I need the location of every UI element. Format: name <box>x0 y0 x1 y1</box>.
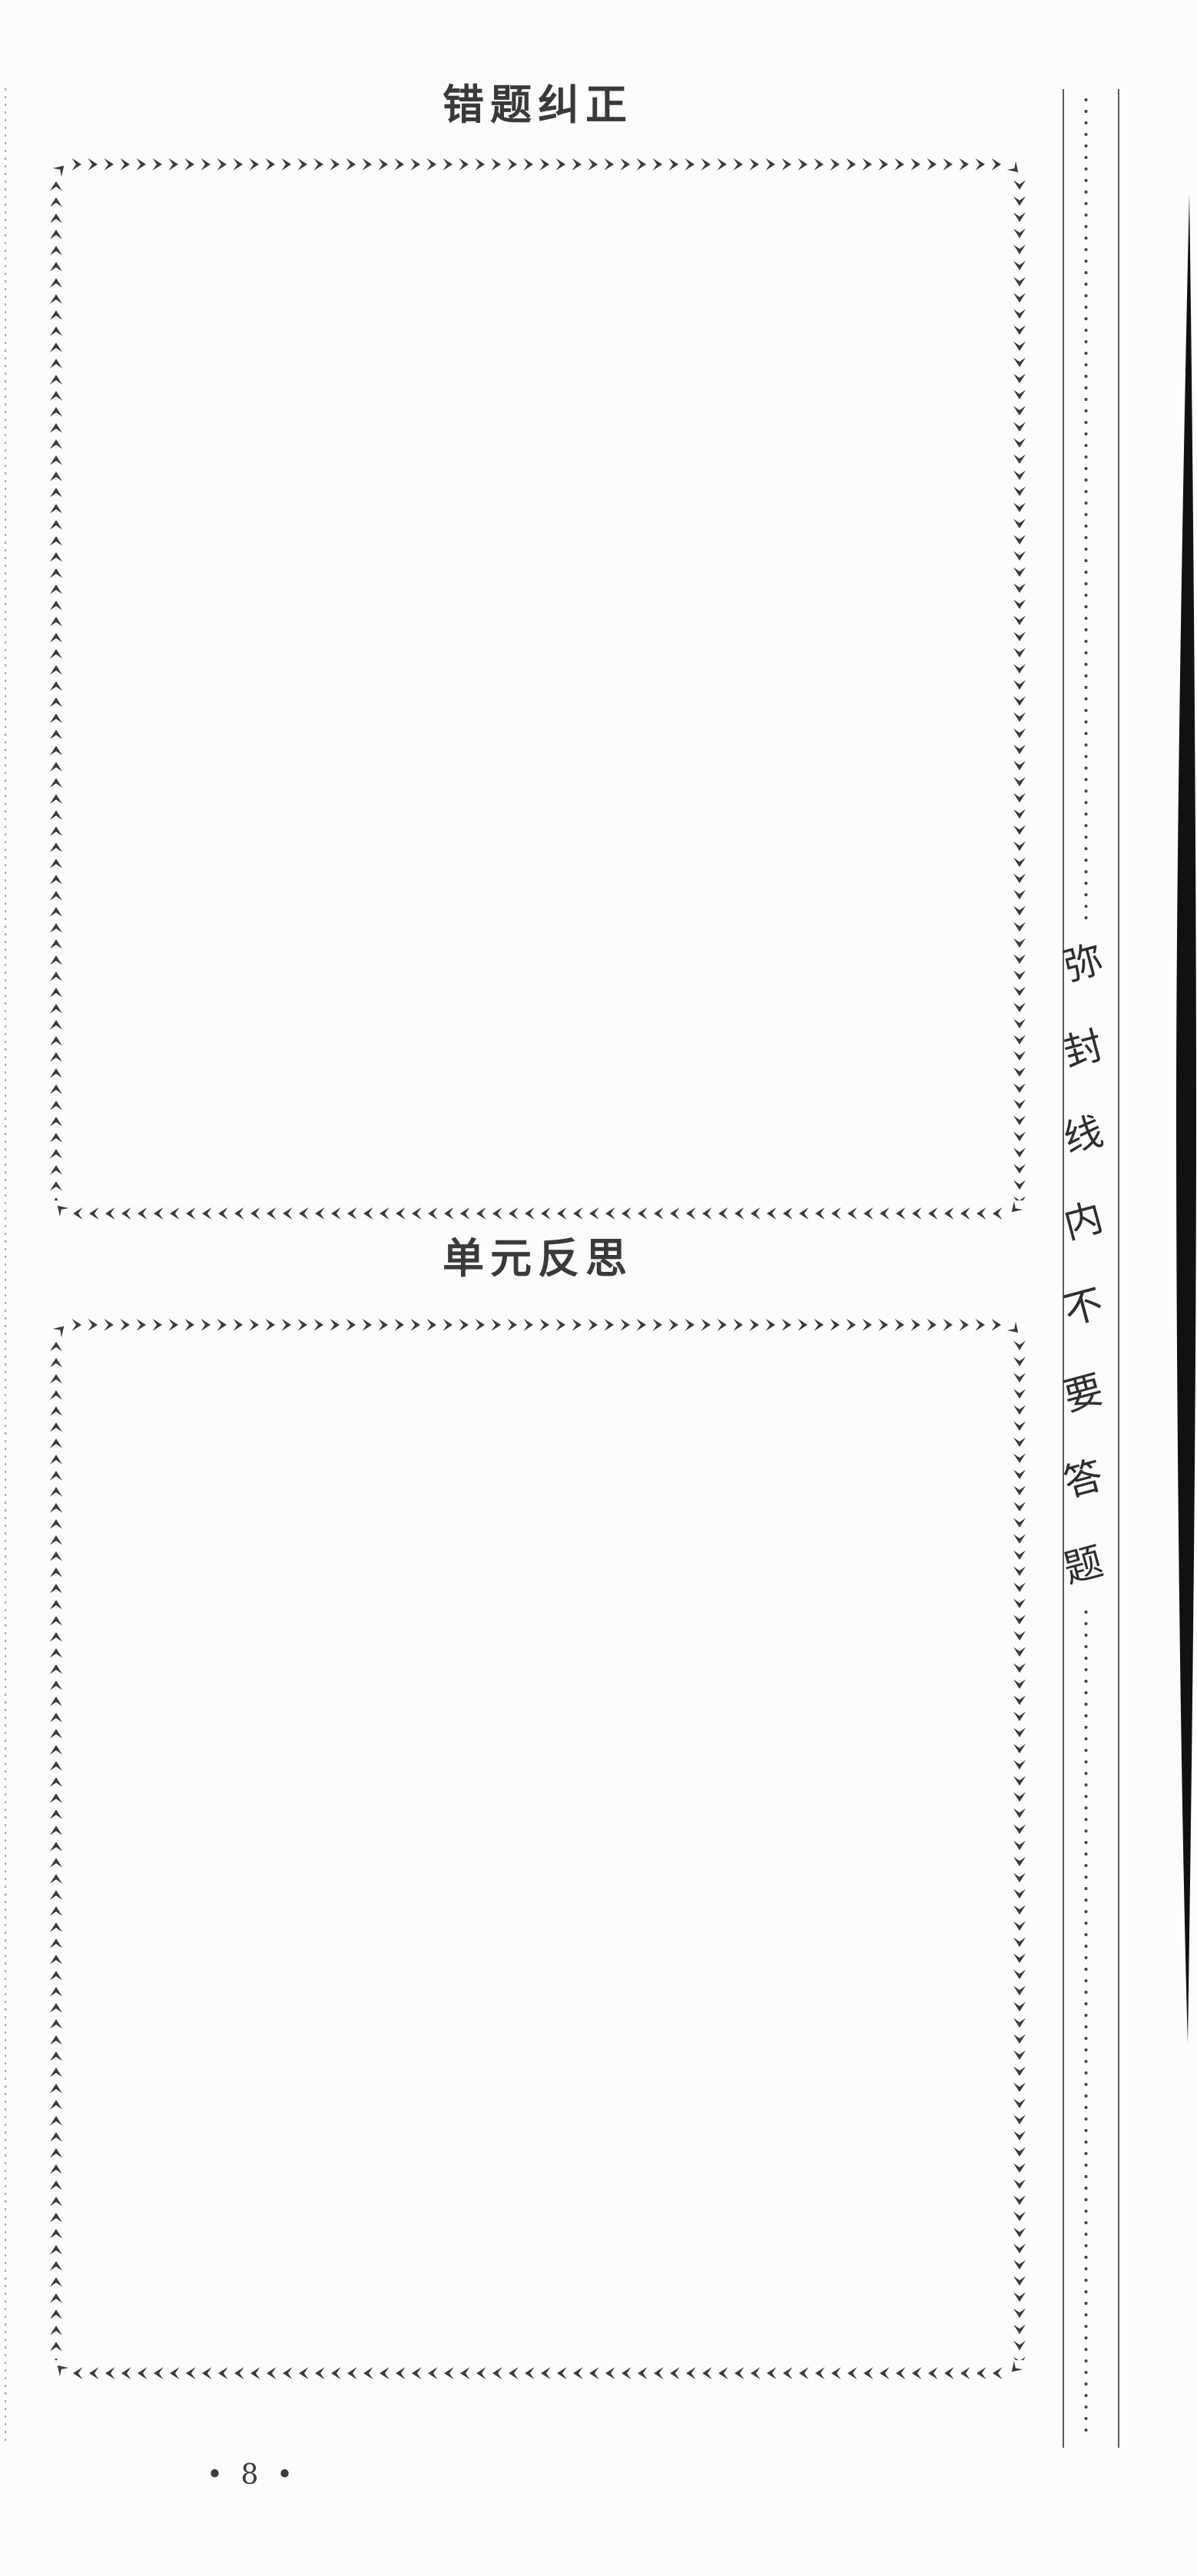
unit-reflection-answer-box <box>49 1318 1026 2380</box>
page-number: • 8 • <box>198 2459 306 2491</box>
chevron-corner-top-right <box>1006 1320 1024 1339</box>
chevron-corner-top-right <box>1006 160 1024 178</box>
seal-char: 线 <box>1059 1111 1107 1159</box>
chevron-corner-top-left <box>51 1320 70 1339</box>
seal-char: 题 <box>1059 1541 1107 1589</box>
seal-line-rule-left <box>1063 89 1064 2448</box>
seal-char: 弥 <box>1059 939 1107 987</box>
seal-char: 内 <box>1059 1197 1107 1245</box>
workbook-page: 错题纠正 单元反思 <box>0 0 1197 2576</box>
chevron-border-top <box>69 1318 1006 1332</box>
chevron-border-right <box>1013 1338 1026 2360</box>
chevron-corner-bottom-right <box>1006 1200 1024 1218</box>
chevron-border-right <box>1013 177 1026 1200</box>
chevron-corner-bottom-right <box>1006 2359 1024 2378</box>
chevron-corner-bottom-left <box>51 1200 70 1218</box>
chevron-corner-bottom-left <box>51 2359 70 2378</box>
error-correction-answer-box <box>49 157 1026 1220</box>
seal-char: 答 <box>1059 1455 1107 1503</box>
left-page-edge-dotted-line <box>5 88 6 2445</box>
chevron-border-left <box>49 1338 63 2360</box>
seal-line-dots-lower <box>1084 1609 1088 2439</box>
scan-shadow-wedge <box>1168 184 1197 2058</box>
chevron-border-top <box>69 157 1006 171</box>
seal-char: 封 <box>1059 1025 1107 1073</box>
seal-char: 要 <box>1059 1369 1107 1417</box>
chevron-border-left <box>49 177 63 1200</box>
seal-line-rule-right <box>1118 89 1119 2448</box>
seal-char: 不 <box>1059 1283 1107 1331</box>
chevron-border-bottom <box>69 1207 1006 1220</box>
section-title-error-correction: 错题纠正 <box>49 84 1026 126</box>
chevron-border-bottom <box>69 2366 1006 2380</box>
seal-line-dots-upper <box>1084 97 1088 928</box>
section-title-unit-reflection: 单元反思 <box>49 1238 1026 1280</box>
chevron-corner-top-left <box>51 160 70 178</box>
